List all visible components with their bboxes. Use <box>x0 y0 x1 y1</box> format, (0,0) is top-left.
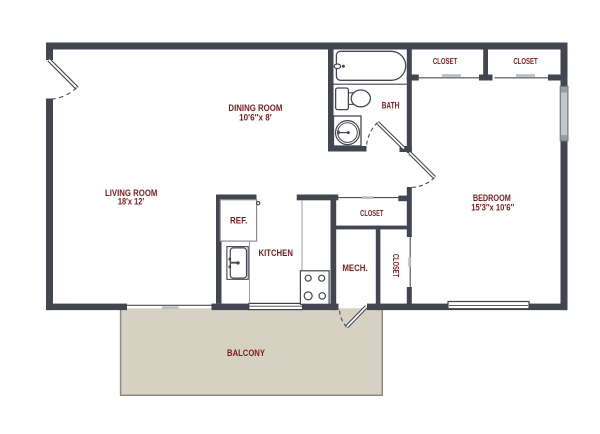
svg-text:CLOSET: CLOSET <box>391 254 402 278</box>
svg-text:KITCHEN: KITCHEN <box>258 247 292 258</box>
svg-text:CLOSET: CLOSET <box>513 56 538 66</box>
svg-text:18′x 12′: 18′x 12′ <box>118 196 144 207</box>
svg-text:BALCONY: BALCONY <box>227 348 265 359</box>
svg-text:REF.: REF. <box>230 215 247 226</box>
svg-text:BATH: BATH <box>382 101 400 111</box>
svg-text:CLOSET: CLOSET <box>433 56 458 66</box>
svg-text:15′3″x 10′6″: 15′3″x 10′6″ <box>471 202 514 213</box>
svg-text:MECH.: MECH. <box>342 262 367 273</box>
svg-text:10′6″x 8′: 10′6″x 8′ <box>239 112 272 123</box>
svg-text:CLOSET: CLOSET <box>360 208 384 219</box>
